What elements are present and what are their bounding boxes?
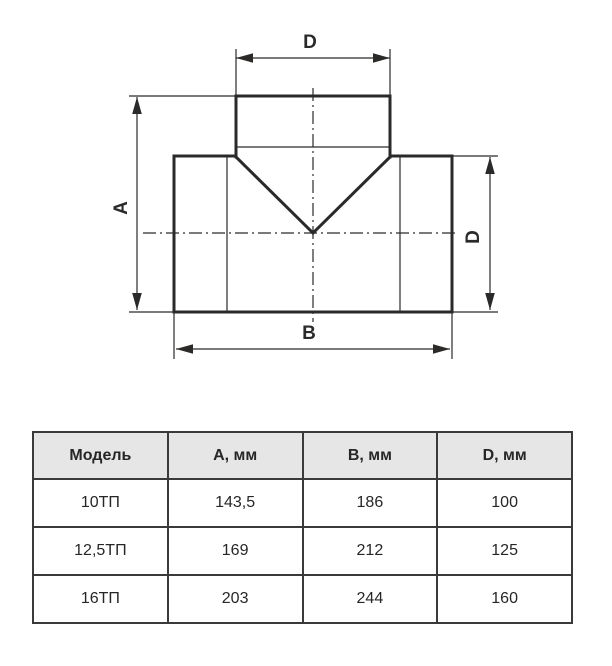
cell-a-mm: 169: [168, 527, 303, 575]
dim-label-right-d: D: [463, 230, 484, 244]
cell-d-mm: 160: [437, 575, 572, 623]
col-header-model: Модель: [33, 432, 168, 479]
cell-b-mm: 244: [303, 575, 438, 623]
dim-label-bottom-b: B: [302, 323, 316, 344]
cell-a-mm: 203: [168, 575, 303, 623]
col-header-d-mm: D, мм: [437, 432, 572, 479]
table-row: 10ТП 143,5 186 100: [33, 479, 572, 527]
cell-d-mm: 100: [437, 479, 572, 527]
centerlines: [143, 88, 458, 322]
cell-b-mm: 186: [303, 479, 438, 527]
cell-d-mm: 125: [437, 527, 572, 575]
table-row: 12,5ТП 169 212 125: [33, 527, 572, 575]
col-header-a-mm: А, мм: [168, 432, 303, 479]
col-header-b-mm: В, мм: [303, 432, 438, 479]
page: D A B D Модель А, мм В, мм D, мм 10ТП 14…: [0, 0, 612, 666]
spec-table-header-row: Модель А, мм В, мм D, мм: [33, 432, 572, 479]
tee-fitting-drawing: D A B D: [0, 0, 612, 412]
cell-model: 16ТП: [33, 575, 168, 623]
cell-a-mm: 143,5: [168, 479, 303, 527]
cell-model: 12,5ТП: [33, 527, 168, 575]
dim-label-top-d: D: [303, 32, 317, 53]
spec-table: Модель А, мм В, мм D, мм 10ТП 143,5 186 …: [32, 431, 573, 624]
cell-b-mm: 212: [303, 527, 438, 575]
dim-label-left-a: A: [111, 201, 132, 215]
cell-model: 10ТП: [33, 479, 168, 527]
table-row: 16ТП 203 244 160: [33, 575, 572, 623]
